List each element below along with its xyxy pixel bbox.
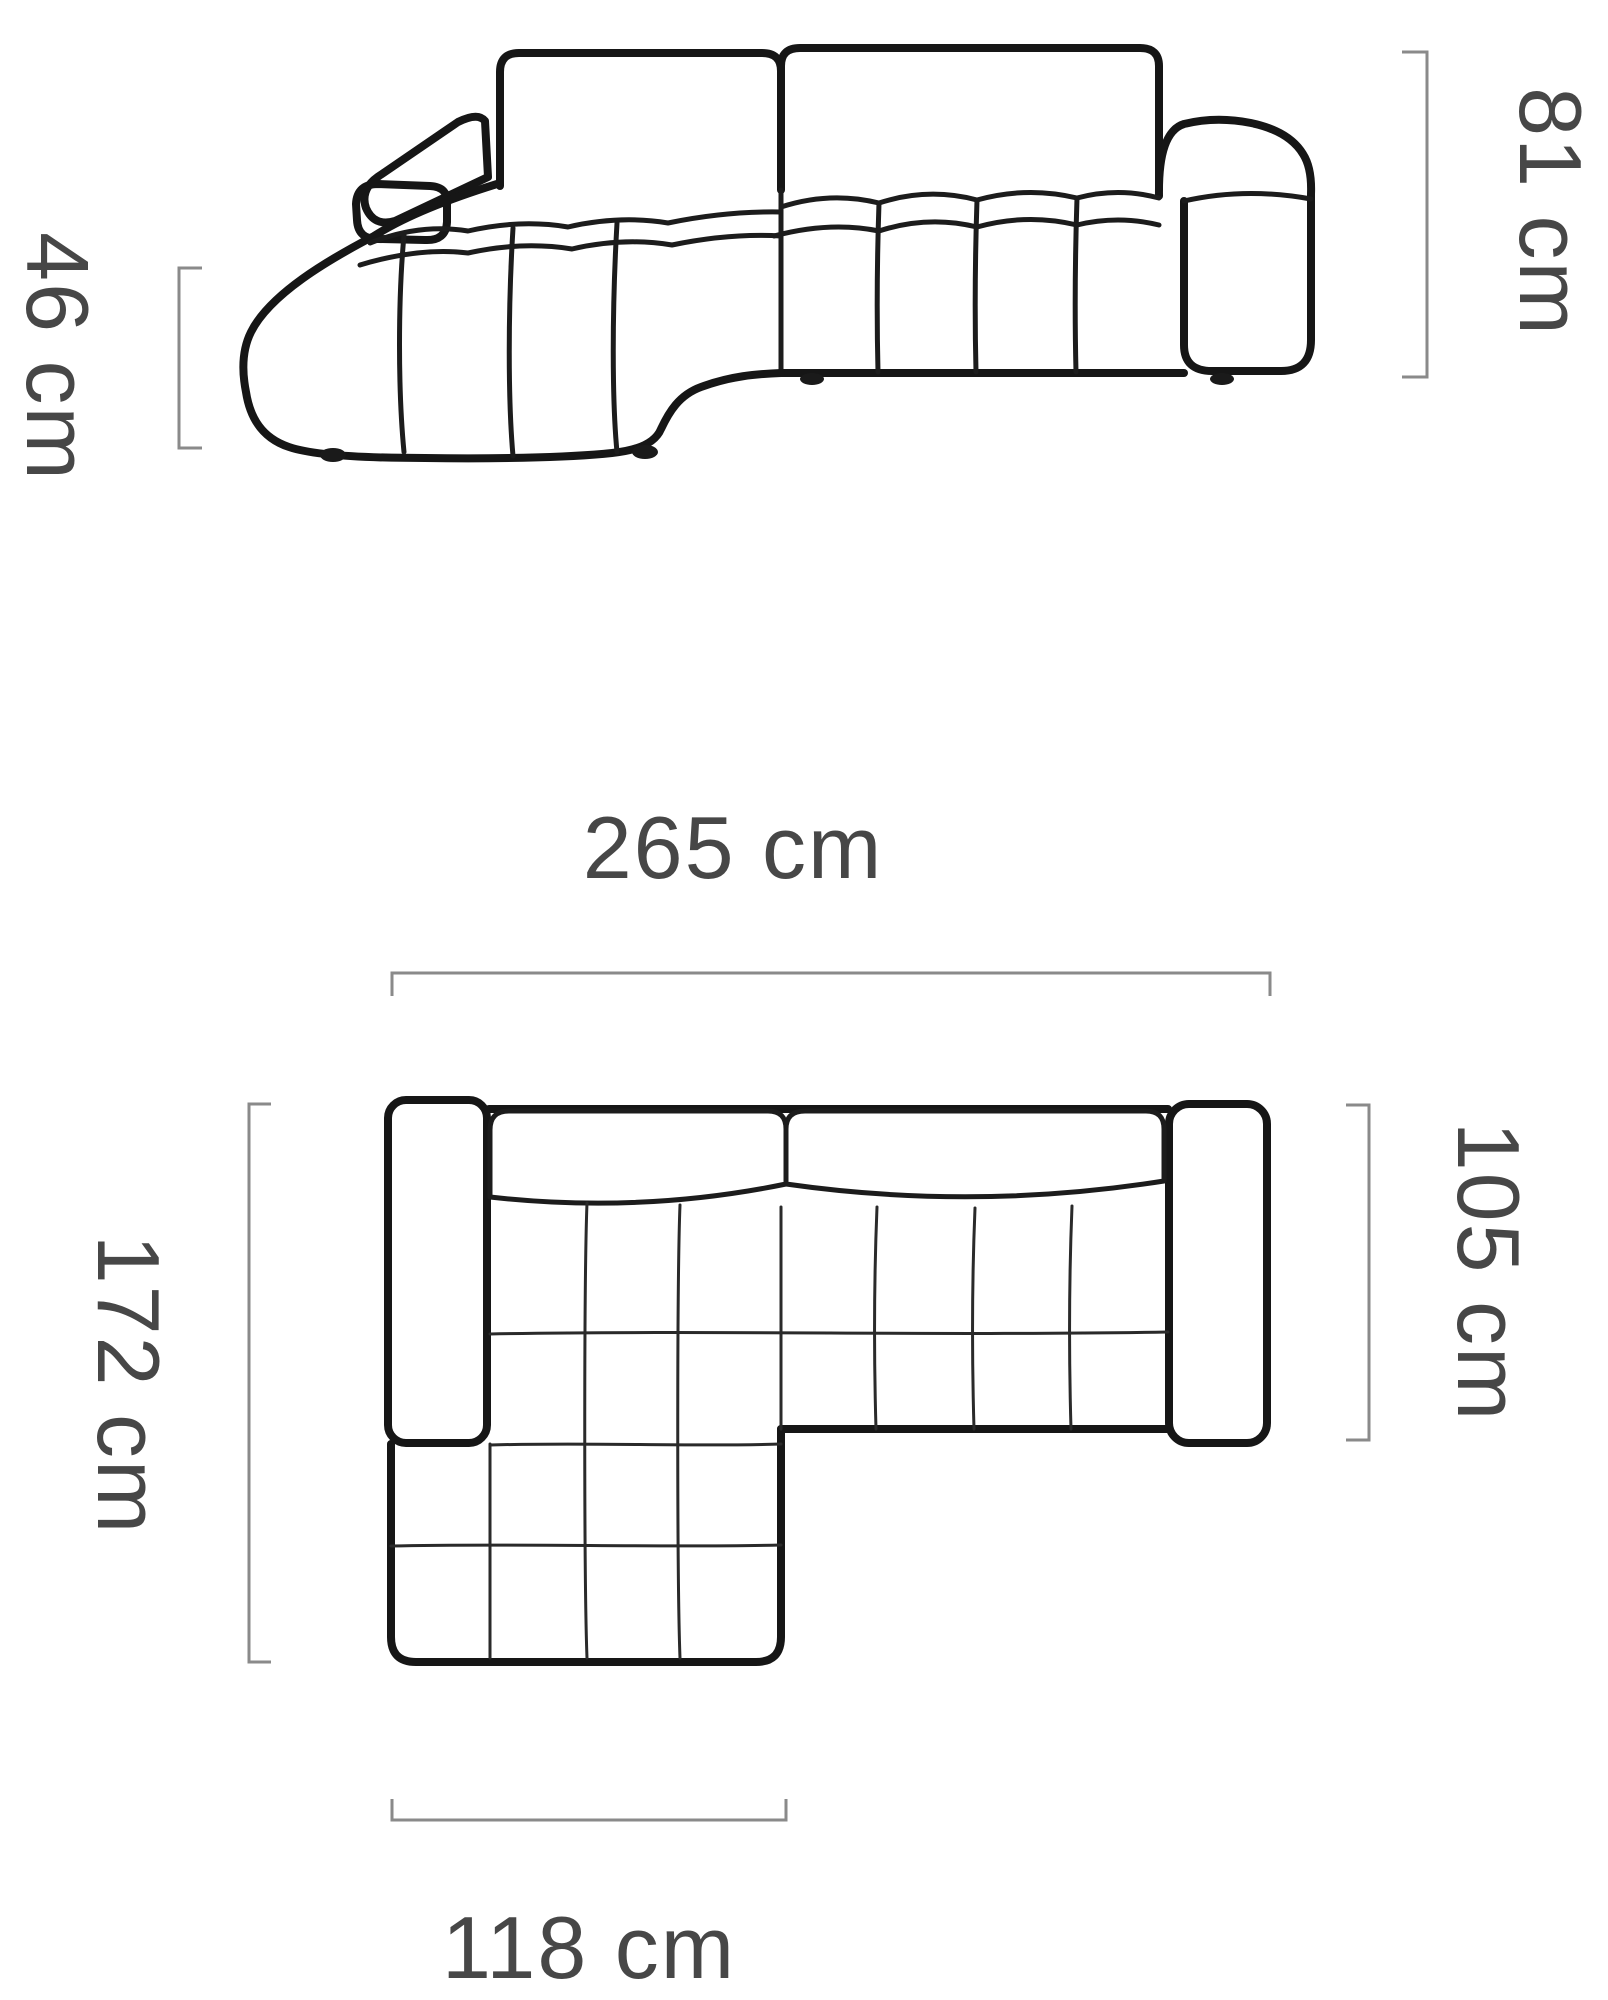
front-chaise-seam-1 (400, 235, 405, 452)
dim-line-body-depth (1346, 1105, 1369, 1440)
front-chaise-seam-3 (613, 223, 617, 452)
sofa-top-view (388, 1100, 1267, 1662)
top-seam-v-1072 (1070, 1206, 1072, 1429)
label-total-width: 265 cm (583, 804, 884, 892)
front-cushion-row-lower (774, 219, 1159, 236)
front-foot-1 (320, 448, 346, 462)
label-chaise-width: 118 cm (442, 1904, 736, 1992)
top-armrest-right (1169, 1104, 1267, 1443)
label-body-depth: 105 cm (1444, 1122, 1532, 1423)
front-cushion-row-upper (781, 192, 1159, 207)
front-seat-seam-2 (975, 200, 977, 372)
top-seam-h-1545 (391, 1545, 781, 1546)
label-seat-height: 46 cm (13, 232, 101, 482)
dim-line-total-height (1402, 52, 1427, 377)
dim-line-seat-height (179, 268, 202, 448)
front-backrest-right (781, 48, 1159, 190)
dimension-lines (179, 52, 1427, 1820)
sofa-front-view (243, 48, 1311, 462)
top-seam-v-587 (585, 1203, 587, 1658)
front-foot-2 (632, 445, 658, 459)
sofa-dimensions-diagram: 81 cm 46 cm 265 cm 172 cm 105 cm 118 cm (0, 0, 1608, 2000)
front-seat-seam-3 (1075, 198, 1077, 372)
top-seam-v-975 (973, 1208, 975, 1429)
top-backrest-cushion-left (490, 1111, 786, 1203)
front-armrest-right-pad-seam (1184, 193, 1311, 201)
top-seam-h-1444 (490, 1444, 781, 1445)
front-chaise-seam-2 (509, 228, 513, 456)
top-armrest-left (388, 1100, 487, 1443)
front-foot-4 (1210, 373, 1234, 385)
label-total-height: 81 cm (1506, 87, 1594, 337)
front-foot-3 (800, 373, 824, 385)
front-seat-seam-1 (877, 203, 879, 372)
top-seam-v-680 (678, 1205, 680, 1658)
top-seam-v-877 (875, 1207, 877, 1429)
dim-line-total-depth (249, 1104, 271, 1662)
label-total-depth: 172 cm (84, 1235, 172, 1536)
dim-line-total-width (392, 973, 1270, 996)
front-armrest-right (1159, 120, 1311, 371)
dim-line-chaise-width (392, 1799, 786, 1820)
top-backrest-cushion-right (786, 1111, 1164, 1197)
front-backrest-left (500, 53, 781, 186)
top-seam-h-1333 (490, 1332, 1168, 1334)
diagram-canvas (0, 0, 1608, 2000)
